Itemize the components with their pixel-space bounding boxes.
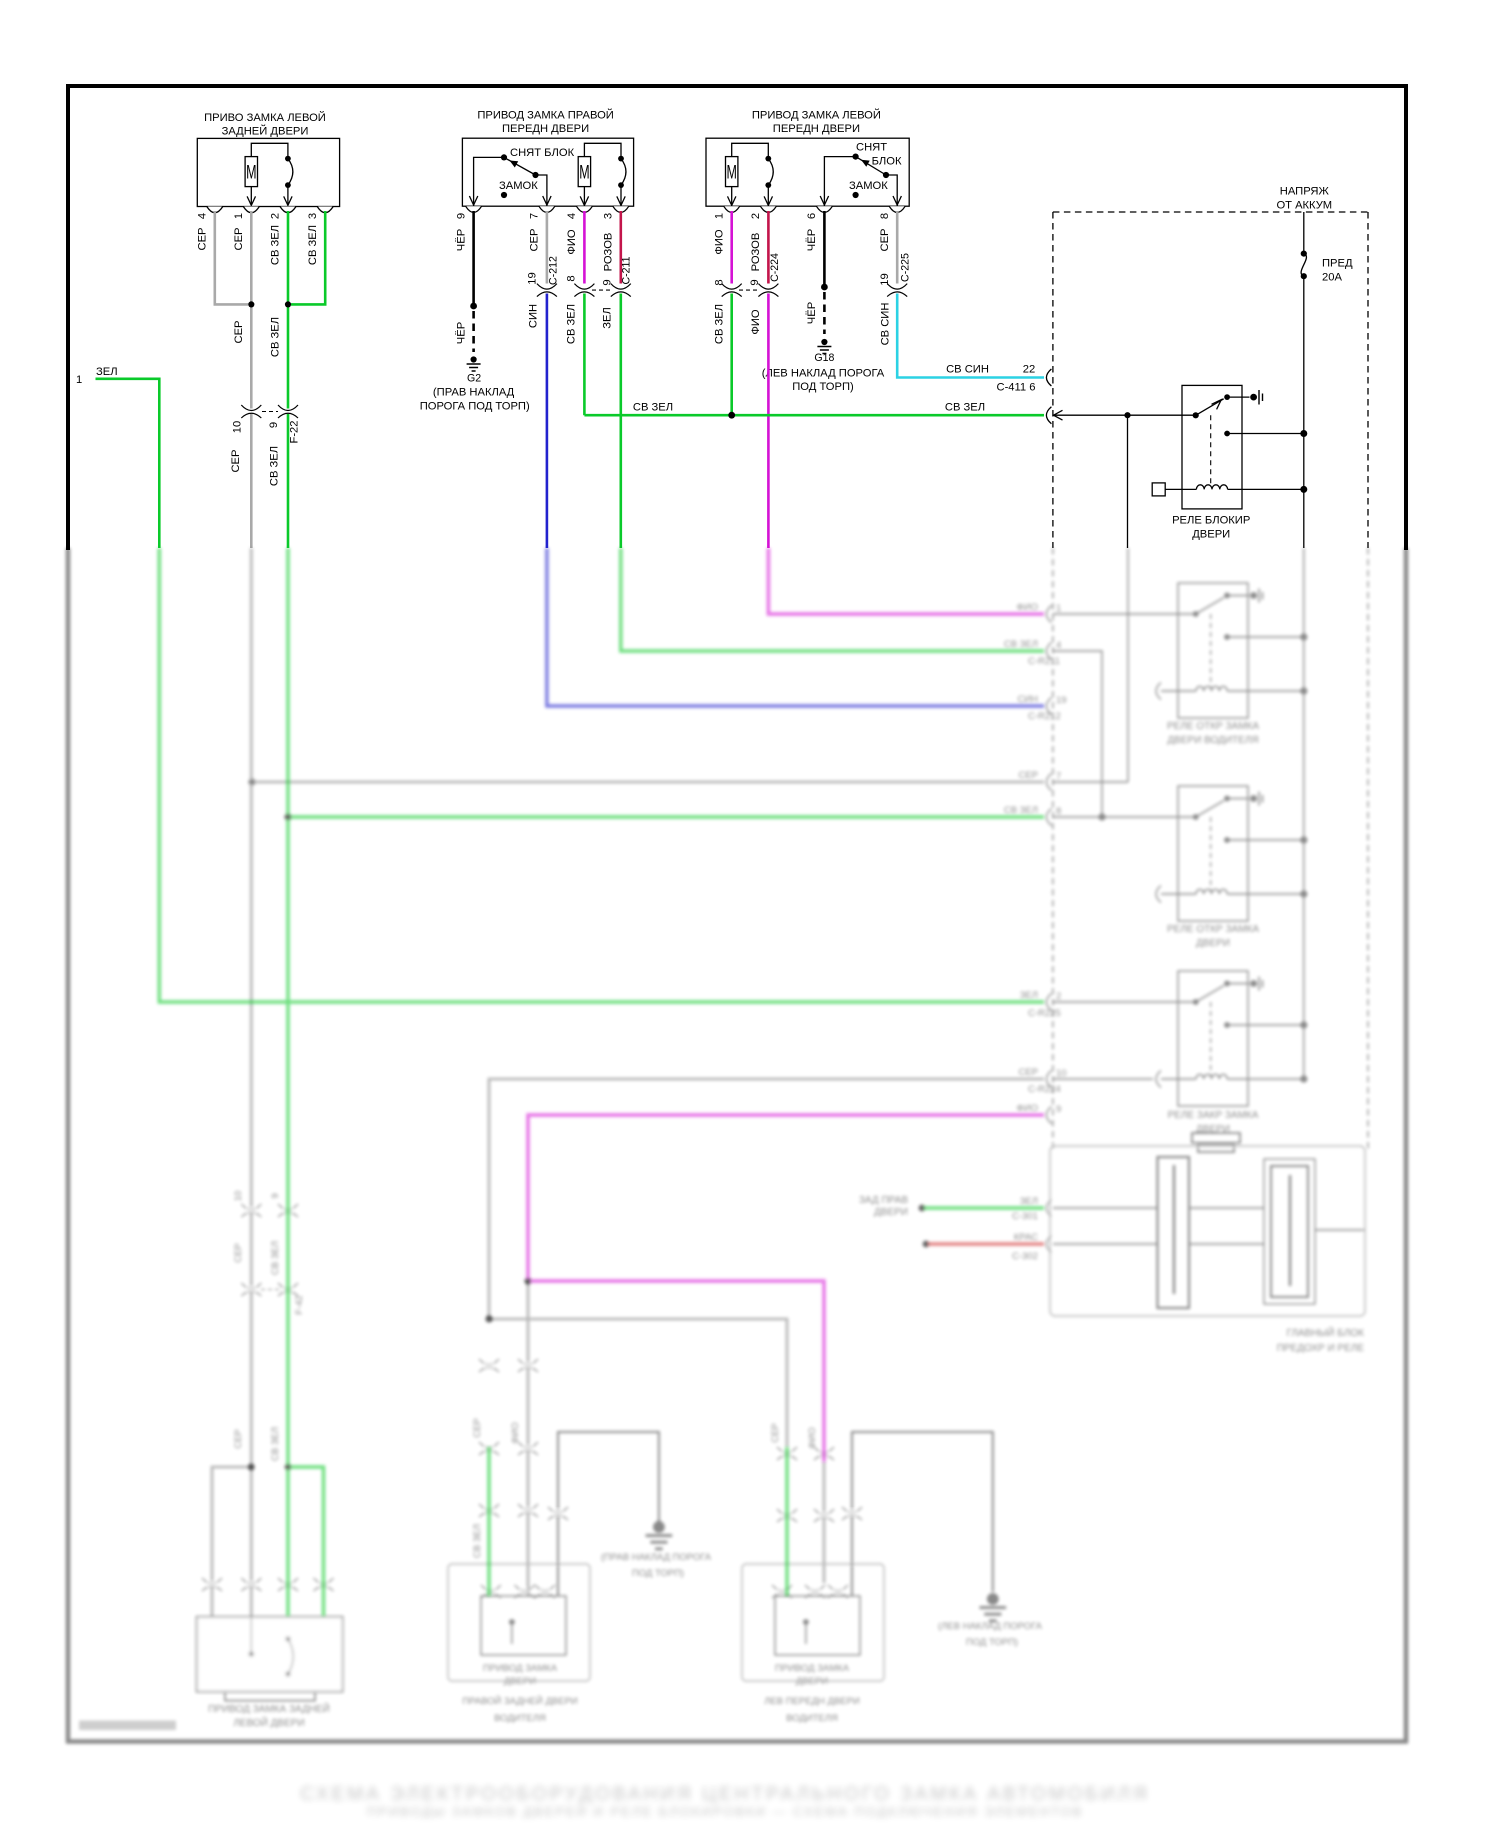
svg-text:СЕР: СЕР: [770, 1423, 781, 1443]
svg-text:СВ ЗЕЛ: СВ ЗЕЛ: [472, 1524, 483, 1558]
svg-text:РОЗОВ: РОЗОВ: [603, 233, 615, 272]
svg-text:ПРЕДОХР И РЕЛЕ: ПРЕДОХР И РЕЛЕ: [1277, 1343, 1365, 1354]
svg-text:СВ ЗЕЛ: СВ ЗЕЛ: [270, 1427, 281, 1461]
svg-text:ДВЕРИ: ДВЕРИ: [504, 1676, 536, 1687]
svg-text:ФИО: ФИО: [510, 1422, 521, 1443]
svg-text:C-R211: C-R211: [1028, 656, 1060, 667]
svg-text:ПРИВОД ЗАМКА ЗАДНЕЙ: ПРИВОД ЗАМКА ЗАДНЕЙ: [208, 1702, 330, 1715]
svg-text:19: 19: [527, 272, 539, 284]
svg-text:2: 2: [1056, 991, 1061, 1002]
svg-text:ПОД ТОРП): ПОД ТОРП): [966, 1637, 1018, 1648]
svg-text:СЕР: СЕР: [472, 1418, 483, 1438]
svg-text:2: 2: [750, 213, 762, 219]
svg-text:СВ ЗЕЛ: СВ ЗЕЛ: [269, 446, 281, 486]
svg-text:1: 1: [76, 374, 82, 386]
svg-text:ПРИВО ЗАМКА ЛЕВОЙ: ПРИВО ЗАМКА ЛЕВОЙ: [204, 111, 326, 124]
svg-text:СЕР: СЕР: [233, 320, 245, 343]
svg-text:4: 4: [566, 213, 578, 219]
svg-text:9: 9: [270, 1193, 281, 1198]
svg-text:СЕР: СЕР: [233, 227, 245, 250]
svg-text:ДВЕРИ: ДВЕРИ: [796, 1676, 828, 1687]
svg-text:ПРИВОД ЗАМКА ЛЕВОЙ: ПРИВОД ЗАМКА ЛЕВОЙ: [752, 108, 881, 121]
svg-text:СВ ЗЕЛ: СВ ЗЕЛ: [270, 317, 282, 357]
svg-text:10: 10: [233, 1191, 244, 1202]
svg-text:ПРЕД: ПРЕД: [1322, 258, 1353, 270]
svg-text:4: 4: [1056, 640, 1061, 651]
svg-text:7: 7: [529, 213, 541, 219]
svg-text:9: 9: [268, 422, 280, 428]
svg-text:ЛЕВОЙ ДВЕРИ: ЛЕВОЙ ДВЕРИ: [233, 1716, 304, 1729]
svg-text:СЕР: СЕР: [1018, 1067, 1038, 1078]
svg-text:9: 9: [455, 213, 467, 219]
svg-text:8: 8: [879, 213, 891, 219]
svg-text:РЕЛЕ ОТКР ЗАМКА: РЕЛЕ ОТКР ЗАМКА: [1167, 721, 1259, 732]
svg-text:СВ ЗЕЛ: СВ ЗЕЛ: [270, 1241, 281, 1275]
svg-text:ЧЁР: ЧЁР: [455, 229, 467, 251]
svg-text:СВ ЗЕЛ: СВ ЗЕЛ: [270, 225, 282, 265]
svg-text:СЕР: СЕР: [230, 449, 242, 472]
svg-text:C-211: C-211: [621, 256, 633, 284]
svg-text:ДВЕРИ: ДВЕРИ: [874, 1207, 908, 1218]
svg-text:C-212: C-212: [548, 256, 560, 285]
svg-text:ВОДИТЕЛЯ: ВОДИТЕЛЯ: [786, 1713, 838, 1724]
svg-text:1: 1: [713, 213, 725, 219]
svg-text:20А: 20А: [1322, 272, 1342, 284]
svg-text:19: 19: [1056, 695, 1067, 706]
svg-text:3: 3: [603, 213, 615, 219]
svg-text:8: 8: [1056, 806, 1061, 817]
svg-text:3: 3: [307, 213, 319, 219]
svg-text:(ПРАВ НАКЛАД: (ПРАВ НАКЛАД: [433, 387, 515, 399]
svg-text:9: 9: [749, 279, 761, 285]
svg-text:СЕР: СЕР: [1018, 770, 1038, 781]
svg-text:ЗАМОК: ЗАМОК: [849, 180, 888, 192]
svg-text:10: 10: [232, 421, 244, 433]
svg-text:C-R224: C-R224: [1028, 1084, 1061, 1095]
svg-text:9: 9: [602, 279, 614, 285]
svg-text:C-R225: C-R225: [1028, 1008, 1061, 1019]
svg-text:СХЕМА ЭЛЕКТРООБОРУДОВАНИЯ ЦЕНТ: СХЕМА ЭЛЕКТРООБОРУДОВАНИЯ ЦЕНТРАЛЬНОГО З…: [300, 1784, 1149, 1805]
svg-text:НАПРЯЖ: НАПРЯЖ: [1280, 186, 1330, 198]
svg-text:ПОД ТОРП): ПОД ТОРП): [632, 1568, 684, 1579]
svg-text:РЕЛЕ ОТКР ЗАМКА: РЕЛЕ ОТКР ЗАМКА: [1167, 924, 1259, 935]
svg-text:(ЛЕВ НАКЛАД ПОРОГА: (ЛЕВ НАКЛАД ПОРОГА: [762, 368, 885, 380]
svg-text:СИН: СИН: [1017, 694, 1038, 705]
svg-text:СВ ЗЕЛ: СВ ЗЕЛ: [307, 225, 319, 265]
svg-text:ЗЕЛ: ЗЕЛ: [602, 307, 614, 329]
svg-text:ГЛАВНЫЙ БЛОК: ГЛАВНЫЙ БЛОК: [1286, 1326, 1364, 1339]
svg-text:9: 9: [1056, 1104, 1061, 1115]
svg-text:ЗАМОК: ЗАМОК: [499, 180, 538, 192]
svg-text:F-22: F-22: [289, 420, 301, 443]
svg-text:ПРАВОЙ ЗАДНЕЙ ДВЕРИ: ПРАВОЙ ЗАДНЕЙ ДВЕРИ: [462, 1695, 578, 1707]
svg-text:ПРИВОД ЗАМКА: ПРИВОД ЗАМКА: [775, 1663, 850, 1674]
svg-text:ЧЁР: ЧЁР: [806, 302, 818, 324]
svg-text:ПРИВОД ЗАМКА ПРАВОЙ: ПРИВОД ЗАМКА ПРАВОЙ: [477, 108, 613, 121]
svg-text:1: 1: [233, 213, 245, 219]
svg-text:СВ ЗЕЛ: СВ ЗЕЛ: [1004, 805, 1038, 816]
svg-text:СЕР: СЕР: [529, 228, 541, 251]
svg-text:СНЯТ БЛОК: СНЯТ БЛОК: [510, 147, 575, 159]
svg-text:ОТ АККУМ: ОТ АККУМ: [1276, 200, 1332, 212]
svg-text:СНЯТ: СНЯТ: [856, 142, 887, 154]
svg-text:ФИО: ФИО: [1017, 602, 1038, 613]
svg-text:ЗЕЛ: ЗЕЛ: [1020, 1196, 1038, 1207]
svg-text:10: 10: [1056, 1068, 1067, 1079]
svg-text:4: 4: [197, 213, 209, 219]
svg-text:СЕР: СЕР: [879, 228, 891, 251]
svg-text:ПОРОГА ПОД ТОРП): ПОРОГА ПОД ТОРП): [420, 400, 530, 412]
svg-text:ДВЕРИ ВОДИТЕЛЯ: ДВЕРИ ВОДИТЕЛЯ: [1167, 735, 1258, 746]
svg-text:СВ ЗЕЛ: СВ ЗЕЛ: [633, 402, 673, 414]
svg-text:8: 8: [713, 279, 725, 285]
svg-text:СВ ЗЕЛ: СВ ЗЕЛ: [1004, 639, 1038, 650]
svg-text:G2: G2: [467, 373, 481, 385]
svg-text:ЛЕВ ПЕРЕДН ДВЕРИ: ЛЕВ ПЕРЕДН ДВЕРИ: [764, 1696, 860, 1707]
svg-text:2: 2: [270, 213, 282, 219]
svg-text:ФИО: ФИО: [807, 1427, 818, 1448]
svg-text:(ЛЕВ НАКЛАД ПОРОГА: (ЛЕВ НАКЛАД ПОРОГА: [938, 1621, 1043, 1632]
svg-text:СВ СИН: СВ СИН: [879, 303, 891, 346]
svg-text:СЕР: СЕР: [233, 1429, 244, 1449]
svg-text:РОЗОВ: РОЗОВ: [750, 233, 762, 272]
svg-text:(ПРАВ НАКЛАД ПОРОГА: (ПРАВ НАКЛАД ПОРОГА: [601, 1552, 712, 1563]
svg-text:ЗЕЛ: ЗЕЛ: [1020, 990, 1038, 1001]
svg-text:F-42: F-42: [294, 1295, 305, 1315]
svg-text:ФИО: ФИО: [1017, 1103, 1038, 1114]
svg-text:19: 19: [879, 273, 891, 285]
svg-text:СВ ЗЕЛ: СВ ЗЕЛ: [713, 304, 725, 344]
svg-text:СВ ЗЕЛ: СВ ЗЕЛ: [945, 402, 985, 414]
svg-text:22: 22: [1023, 364, 1035, 376]
svg-text:ЗАД ПРАВ: ЗАД ПРАВ: [859, 1195, 908, 1206]
svg-text:ВОДИТЕЛЯ: ВОДИТЕЛЯ: [494, 1713, 546, 1724]
svg-text:КРАС: КРАС: [1014, 1232, 1038, 1243]
svg-text:6: 6: [806, 213, 818, 219]
svg-text:ФИО: ФИО: [713, 229, 725, 255]
svg-text:ДВЕРИ: ДВЕРИ: [1192, 528, 1230, 540]
svg-text:РЕЛЕ ЗАКР ЗАМКА: РЕЛЕ ЗАКР ЗАМКА: [1168, 1110, 1259, 1121]
svg-text:1: 1: [1056, 603, 1061, 614]
svg-text:СЕР: СЕР: [197, 227, 209, 250]
svg-text:ПОД ТОРП): ПОД ТОРП): [792, 381, 854, 393]
svg-text:БЛОК: БЛОК: [872, 156, 902, 168]
svg-text:СВ ЗЕЛ: СВ ЗЕЛ: [566, 304, 578, 344]
svg-text:РЕЛЕ БЛОКИР: РЕЛЕ БЛОКИР: [1172, 514, 1250, 526]
svg-text:C-224: C-224: [769, 253, 781, 282]
svg-text:ЗАДНЕЙ ДВЕРИ: ЗАДНЕЙ ДВЕРИ: [222, 125, 309, 138]
svg-text:ПРИВОД ЗАМКА: ПРИВОД ЗАМКА: [483, 1663, 558, 1674]
svg-text:ДВЕРИ: ДВЕРИ: [1196, 938, 1230, 949]
svg-text:ЧЁР: ЧЁР: [455, 322, 467, 344]
svg-text:ФИО: ФИО: [566, 229, 578, 255]
svg-text:C-411 6: C-411 6: [997, 382, 1036, 394]
svg-text:C-225: C-225: [900, 253, 912, 282]
svg-text:G18: G18: [814, 352, 834, 364]
svg-text:СЕР: СЕР: [233, 1243, 244, 1263]
svg-text:C-302: C-302: [1012, 1251, 1038, 1262]
svg-text:7: 7: [1056, 771, 1061, 782]
svg-text:ЧЁР: ЧЁР: [806, 229, 818, 251]
svg-text:C-301: C-301: [1012, 1211, 1038, 1222]
svg-text:СВ СИН: СВ СИН: [946, 364, 989, 376]
svg-text:C-R212: C-R212: [1028, 711, 1061, 722]
svg-text:ФИО: ФИО: [750, 309, 762, 335]
svg-text:ЗЕЛ: ЗЕЛ: [96, 366, 118, 378]
svg-text:ПЕРЕДН ДВЕРИ: ПЕРЕДН ДВЕРИ: [502, 123, 589, 135]
svg-text:8: 8: [566, 275, 578, 281]
svg-text:ПРИВОДЫ ЗАМКОВ ДВЕРЕЙ И РЕЛЕ Б: ПРИВОДЫ ЗАМКОВ ДВЕРЕЙ И РЕЛЕ БЛОКИРОВКИ …: [367, 1804, 1084, 1819]
svg-text:СИН: СИН: [528, 304, 540, 328]
svg-text:ПЕРЕДН ДВЕРИ: ПЕРЕДН ДВЕРИ: [773, 123, 860, 135]
